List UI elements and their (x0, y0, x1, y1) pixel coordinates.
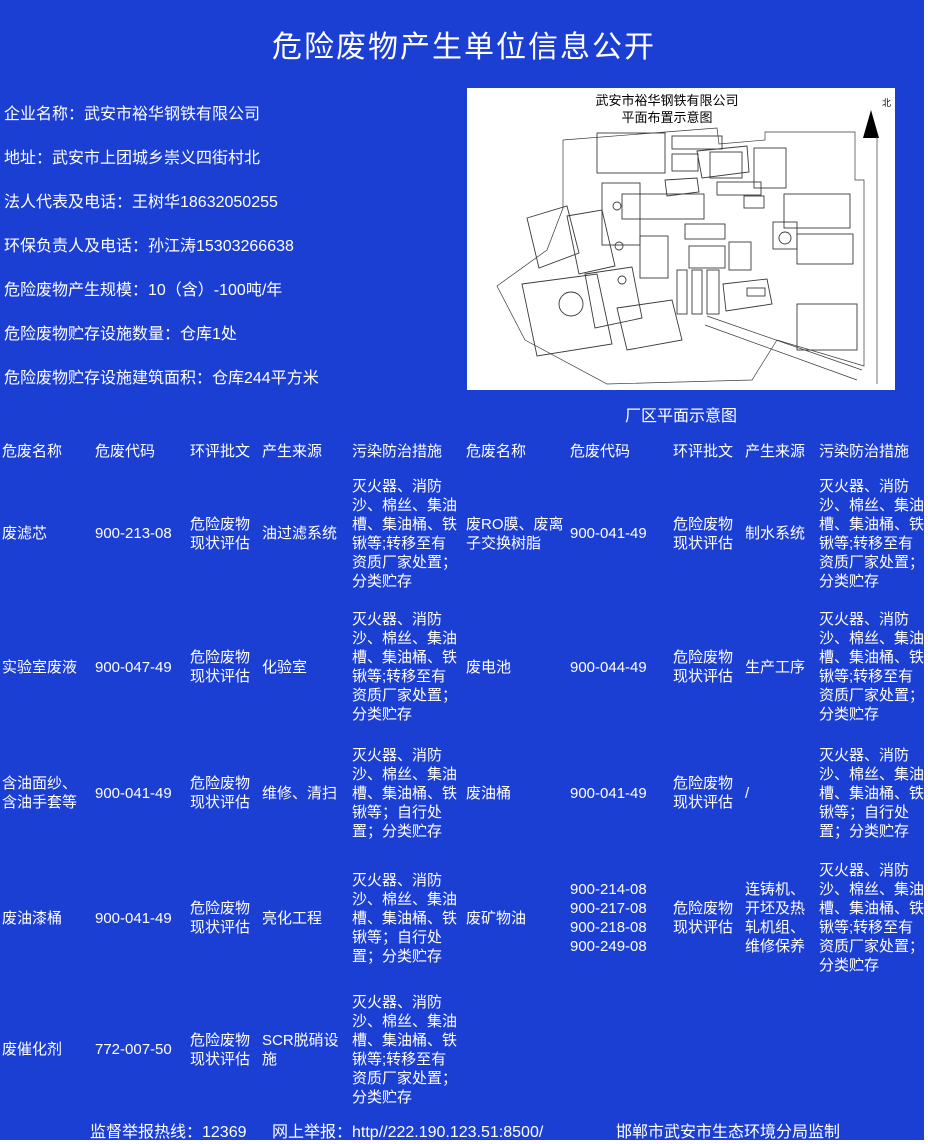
cell-waste-name (465, 1048, 569, 1052)
map-title-line2: 平面布置示意图 (621, 110, 712, 125)
bottom-edge-divider (0, 1140, 928, 1144)
cell-waste-code: 900-041-49 (569, 782, 672, 805)
cell-waste-code: 900-047-49 (94, 656, 189, 679)
report-hotline: 监督举报热线：12369 (90, 1118, 247, 1142)
page-title: 危险废物产生单位信息公开 (0, 22, 928, 66)
cell-measures (818, 1048, 928, 1052)
cell-waste-code: 900-041-49 (94, 782, 189, 805)
cell-measures: 灭火器、消防沙、棉丝、集油槽、集油桶、铁锹等;转移至有资质厂家处置；分类贮存 (351, 608, 465, 726)
cell-waste-name: 废电池 (465, 656, 569, 679)
cell-eia-approval: 危险废物现状评估 (189, 772, 261, 814)
map-caption: 厂区平面示意图 (467, 402, 895, 426)
cell-source: 化验室 (261, 656, 351, 679)
cell-eia-approval: 危险废物现状评估 (672, 897, 744, 939)
info-line-storage-area: 危险废物贮存设施建筑面积：仓库244平方米 (4, 364, 319, 388)
info-line-waste-scale: 危险废物产生规模：10（含）-100吨/年 (4, 276, 282, 300)
plant-layout-map: 武安市裕华钢铁有限公司 平面布置示意图 北 (467, 88, 895, 390)
cell-eia-approval: 危险废物现状评估 (189, 897, 261, 939)
cell-source: 亮化工程 (261, 907, 351, 930)
cell-eia-approval: 危险废物现状评估 (672, 646, 744, 688)
table-row: 含油面纱、含油手套等 900-041-49 危险废物现状评估 维修、清扫 灭火器… (1, 733, 927, 853)
table-header-row: 危废名称 危废代码 环评批文 产生来源 污染防治措施 危废名称 危废代码 环评批… (1, 440, 927, 466)
map-title-line1: 武安市裕华钢铁有限公司 (595, 93, 738, 108)
cell-waste-name: 实验室废液 (1, 656, 94, 679)
header-approval-left: 环评批文 (189, 440, 261, 463)
online-report-url[interactable]: 网上举报：http//222.190.123.51:8500/ (272, 1118, 543, 1142)
cell-waste-code: 900-041-49 (94, 907, 189, 930)
cell-eia-approval: 危险废物现状评估 (189, 1029, 261, 1071)
cell-source (744, 1048, 818, 1052)
cell-waste-name: 废油桶 (465, 782, 569, 805)
cell-source: SCR脱硝设施 (261, 1029, 351, 1071)
plant-map-drawing: 武安市裕华钢铁有限公司 平面布置示意图 北 (467, 88, 895, 390)
cell-waste-code: 772-007-50 (94, 1038, 189, 1061)
table-row: 废滤芯 900-213-08 危险废物现状评估 油过滤系统 灭火器、消防沙、棉丝… (1, 466, 927, 601)
cell-waste-name: 含油面纱、含油手套等 (1, 772, 94, 814)
table-row: 实验室废液 900-047-49 危险废物现状评估 化验室 灭火器、消防沙、棉丝… (1, 601, 927, 733)
cell-measures: 灭火器、消防沙、棉丝、集油槽、集油桶、铁锹等;转移至有资质厂家处置；分类贮存 (818, 608, 928, 726)
header-code-left: 危废代码 (94, 440, 189, 463)
cell-waste-code (569, 1048, 672, 1052)
info-line-env-contact: 环保负责人及电话：孙江涛15303266638 (4, 232, 294, 256)
cell-eia-approval: 危险废物现状评估 (189, 513, 261, 555)
cell-waste-code: 900-041-49 (569, 522, 672, 545)
info-line-legal-rep: 法人代表及电话：王树华18632050255 (4, 188, 278, 212)
cell-measures: 灭火器、消防沙、棉丝、集油槽、集油桶、铁锹等;转移至有资质厂家处置；分类贮存 (351, 475, 465, 593)
cell-source: 生产工序 (744, 656, 818, 679)
cell-waste-name: 废催化剂 (1, 1038, 94, 1061)
info-line-address: 地址：武安市上团城乡崇义四街村北 (4, 144, 260, 168)
cell-eia-approval: 危险废物现状评估 (672, 513, 744, 555)
cell-source: 油过滤系统 (261, 522, 351, 545)
header-name-right: 危废名称 (465, 440, 569, 463)
cell-waste-code: 900-214-08 900-217-08 900-218-08 900-249… (569, 878, 672, 958)
cell-measures: 灭火器、消防沙、棉丝、集油槽、集油桶、铁锹等;转移至有资质厂家处置；分类贮存 (351, 991, 465, 1109)
cell-waste-name: 废油漆桶 (1, 907, 94, 930)
header-source-right: 产生来源 (744, 440, 818, 463)
table-row: 废催化剂 772-007-50 危险废物现状评估 SCR脱硝设施 灭火器、消防沙… (1, 983, 927, 1116)
info-line-company-name: 企业名称：武安市裕华钢铁有限公司 (4, 100, 260, 124)
cell-waste-code: 900-213-08 (94, 522, 189, 545)
header-measures-right: 污染防治措施 (818, 440, 928, 463)
header-source-left: 产生来源 (261, 440, 351, 463)
table-row: 废油漆桶 900-041-49 危险废物现状评估 亮化工程 灭火器、消防沙、棉丝… (1, 853, 927, 983)
cell-eia-approval: 危险废物现状评估 (672, 772, 744, 814)
header-approval-right: 环评批文 (672, 440, 744, 463)
cell-source: 维修、清扫 (261, 782, 351, 805)
cell-measures: 灭火器、消防沙、棉丝、集油槽、集油桶、铁锹等;转移至有资质厂家处置；分类贮存 (818, 859, 928, 977)
north-label: 北 (882, 98, 891, 108)
cell-measures: 灭火器、消防沙、棉丝、集油槽、集油桶、铁锹等；自行处置；分类贮存 (351, 869, 465, 968)
footer: 监督举报热线：12369 网上举报：http//222.190.123.51:8… (0, 1118, 928, 1140)
cell-eia-approval: 危险废物现状评估 (189, 646, 261, 688)
cell-measures: 灭火器、消防沙、棉丝、集油槽、集油桶、铁锹等；自行处置；分类贮存 (351, 744, 465, 843)
right-edge-divider (924, 0, 928, 1144)
cell-source: / (744, 782, 818, 805)
cell-source: 制水系统 (744, 522, 818, 545)
supervising-agency: 邯郸市武安市生态环境分局监制 (616, 1118, 840, 1142)
cell-source: 连铸机、开坯及热轧机组、维修保养 (744, 878, 818, 958)
cell-measures: 灭火器、消防沙、棉丝、集油槽、集油桶、铁锹等;转移至有资质厂家处置；分类贮存 (818, 475, 928, 593)
cell-waste-name: 废RO膜、废离子交换树脂 (465, 513, 569, 555)
waste-table: 危废名称 危废代码 环评批文 产生来源 污染防治措施 危废名称 危废代码 环评批… (1, 440, 927, 1116)
cell-waste-name: 废矿物油 (465, 907, 569, 930)
info-line-storage-count: 危险废物贮存设施数量：仓库1处 (4, 320, 237, 344)
cell-waste-code: 900-044-49 (569, 656, 672, 679)
cell-eia-approval (672, 1048, 744, 1052)
header-code-right: 危废代码 (569, 440, 672, 463)
header-name-left: 危废名称 (1, 440, 94, 463)
header-measures-left: 污染防治措施 (351, 440, 465, 463)
cell-measures: 灭火器、消防沙、棉丝、集油槽、集油桶、铁锹等；自行处置；分类贮存 (818, 744, 928, 843)
cell-waste-name: 废滤芯 (1, 522, 94, 545)
